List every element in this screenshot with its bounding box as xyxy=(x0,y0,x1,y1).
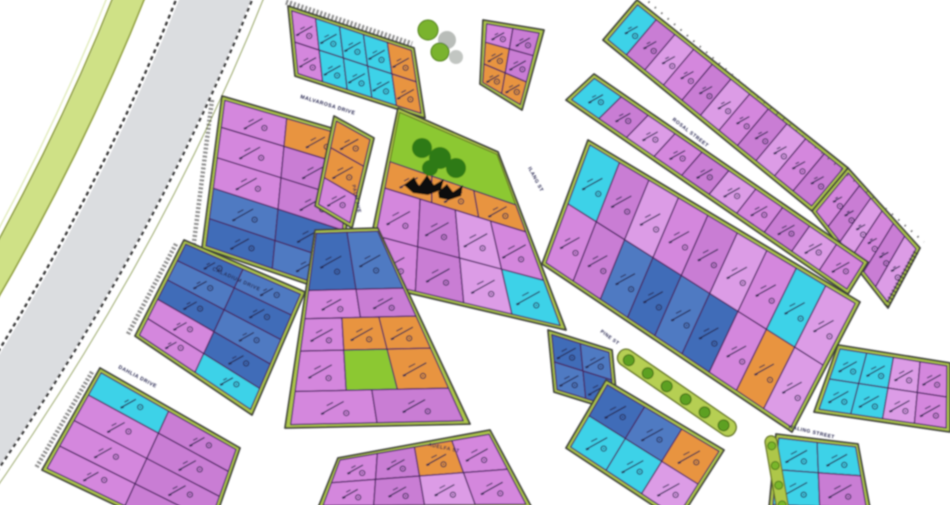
svg-text:MALVAROSA DRIVE: MALVAROSA DRIVE xyxy=(299,94,356,116)
svg-text:ILANG ST: ILANG ST xyxy=(526,166,544,193)
svg-text:PINE ST: PINE ST xyxy=(599,329,620,347)
